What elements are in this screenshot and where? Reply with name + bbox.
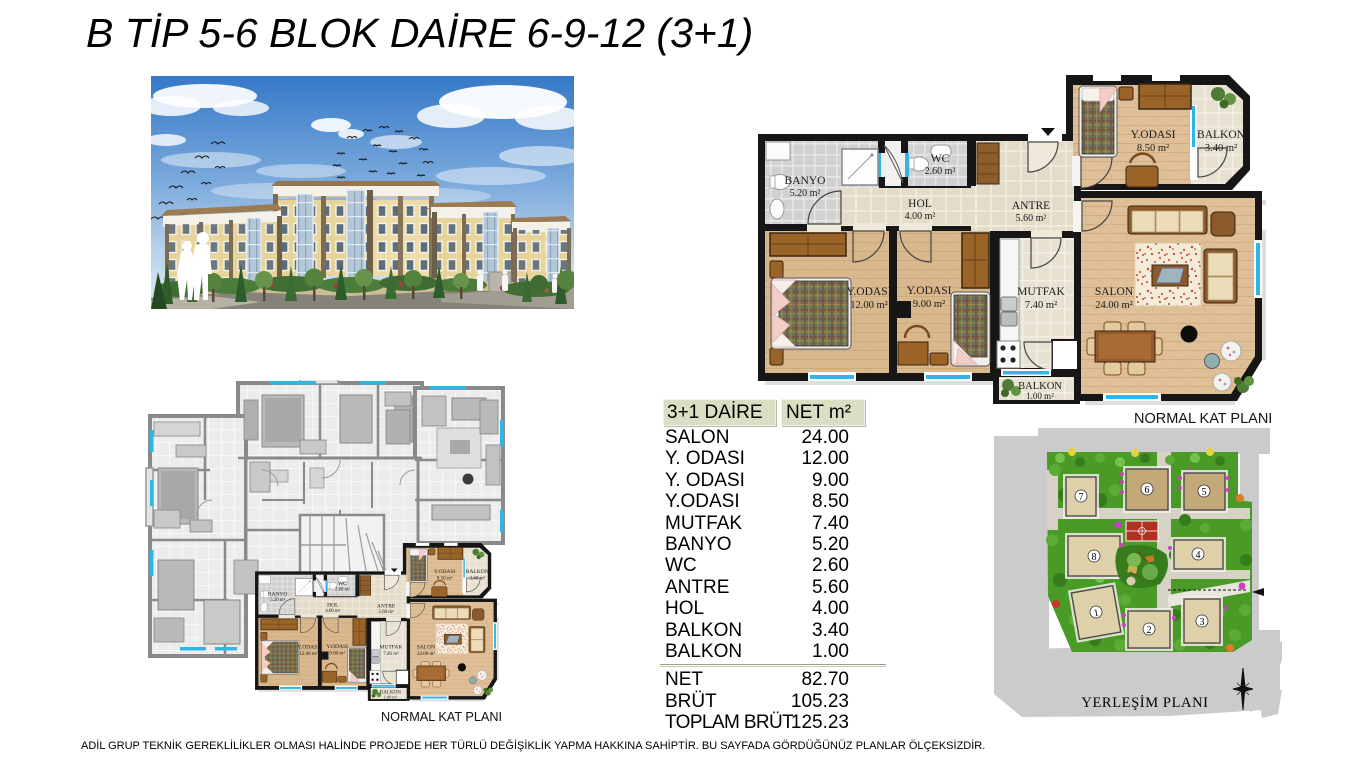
svg-text:2: 2: [1147, 625, 1152, 636]
svg-text:5: 5: [1202, 487, 1207, 498]
svg-text:5.20 m²: 5.20 m²: [790, 188, 821, 199]
svg-text:7.40 m²: 7.40 m²: [1025, 300, 1057, 311]
svg-text:Y.ODASI: Y.ODASI: [1131, 129, 1176, 141]
svg-text:WC: WC: [931, 153, 950, 165]
svg-text:HOL: HOL: [908, 198, 932, 210]
svg-text:8: 8: [1092, 552, 1097, 563]
svg-text:5.60 m²: 5.60 m²: [1016, 213, 1047, 224]
svg-text:Y.ODASI: Y.ODASI: [907, 285, 952, 297]
svg-text:2.60 m²: 2.60 m²: [925, 166, 956, 177]
svg-text:BALKON: BALKON: [1197, 129, 1246, 141]
svg-text:4: 4: [1196, 550, 1201, 561]
svg-text:YERLEŞİM PLANI: YERLEŞİM PLANI: [1081, 695, 1208, 711]
svg-text:1.00 m²: 1.00 m²: [1026, 391, 1054, 401]
svg-text:7: 7: [1079, 492, 1084, 503]
svg-text:4.00 m²: 4.00 m²: [905, 211, 936, 222]
svg-text:12.00 m²: 12.00 m²: [850, 300, 888, 311]
svg-text:BANYO: BANYO: [785, 175, 826, 187]
svg-text:8.50 m²: 8.50 m²: [1137, 143, 1169, 154]
svg-text:MUTFAK: MUTFAK: [1017, 286, 1065, 298]
svg-text:ANTRE: ANTRE: [1012, 200, 1050, 212]
svg-text:3.40 m²: 3.40 m²: [1205, 143, 1237, 154]
svg-text:9.00 m²: 9.00 m²: [913, 299, 945, 310]
svg-text:6: 6: [1145, 485, 1150, 496]
svg-text:SALON: SALON: [1095, 286, 1134, 298]
svg-text:3: 3: [1200, 617, 1205, 628]
svg-text:24.00 m²: 24.00 m²: [1095, 300, 1133, 311]
svg-text:Y.ODASI: Y.ODASI: [847, 286, 892, 298]
